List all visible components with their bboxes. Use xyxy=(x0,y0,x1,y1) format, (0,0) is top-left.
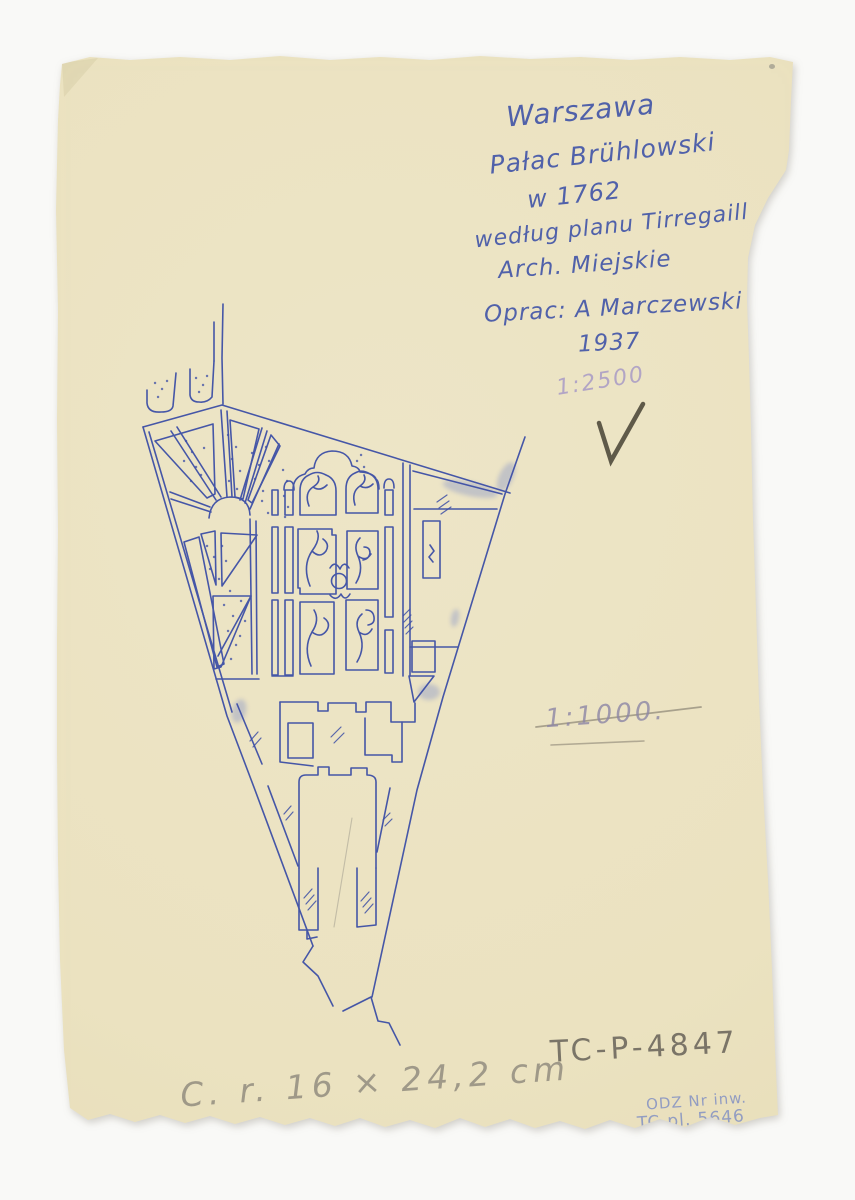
pencil-faint-line xyxy=(334,818,352,927)
paper-sheet: Warszawa Pałac Brühlowski w 1762 według … xyxy=(0,0,855,1200)
rust-spot xyxy=(646,1131,651,1136)
tree-dots xyxy=(155,376,364,659)
plan-ink-lines xyxy=(143,304,525,1045)
pencil-checkmark-icon xyxy=(599,404,643,461)
scanned-archival-plan: { "page": { "background_color": "#f9f9f7… xyxy=(0,0,855,1200)
title-line-date: 1937 xyxy=(577,328,641,357)
garden-plan-drawing xyxy=(0,0,855,1200)
pencil-marks xyxy=(334,404,701,927)
pencil-underline xyxy=(551,741,644,745)
paper-wrap: Warszawa Pałac Brühlowski w 1762 według … xyxy=(0,0,855,1200)
